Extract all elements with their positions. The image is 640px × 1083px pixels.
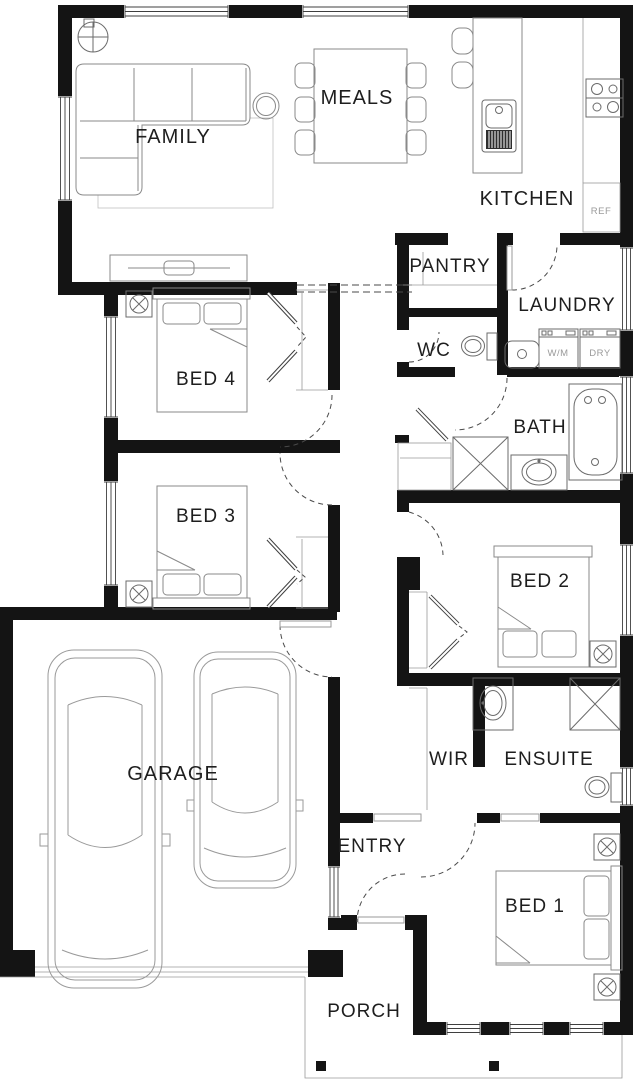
room-label-bed4: BED 4 — [176, 369, 236, 390]
ceiling-fan-bed3 — [126, 581, 152, 607]
window-bath-right — [619, 376, 634, 474]
laundry-tub — [505, 341, 539, 368]
family-furniture — [76, 19, 279, 281]
pillow — [503, 631, 537, 657]
bed1-door-leaf — [374, 814, 421, 821]
bed2-furniture — [409, 546, 616, 668]
stool — [452, 28, 473, 54]
garage-door-leaf — [280, 621, 331, 627]
chair — [406, 97, 426, 122]
window-meals-top — [302, 4, 409, 19]
washer-label: W/M — [547, 348, 568, 359]
bed2-headboard — [494, 546, 592, 557]
stool — [452, 62, 473, 88]
garage-door — [35, 967, 308, 972]
room-label-porch: PORCH — [327, 1001, 401, 1022]
floor-plan-svg: FAMILY MEALS KITCHEN PANTRY LAUNDRY WC B… — [0, 0, 640, 1083]
bed3-fold — [157, 551, 195, 570]
wir-ensuite-fixtures — [409, 678, 622, 810]
bath-fixtures — [398, 384, 622, 490]
laundry-door-swing — [512, 245, 557, 290]
room-label-entry: ENTRY — [337, 836, 406, 857]
kitchen-sink — [482, 100, 516, 152]
room-label-ensuite: ENSUITE — [504, 749, 593, 770]
window-bed3-left — [103, 481, 119, 586]
room-label-family: FAMILY — [135, 126, 211, 148]
room-label-kitchen: KITCHEN — [480, 188, 575, 210]
room-label-bed3: BED 3 — [176, 506, 236, 527]
bath-vanity — [511, 455, 567, 490]
bathtub — [569, 384, 622, 480]
bed1-mattress — [496, 871, 611, 965]
porch-post — [316, 1061, 326, 1071]
dryer-label: DRY — [589, 348, 611, 359]
front-door-swing — [357, 874, 405, 922]
window-family-left — [57, 96, 73, 201]
ensuite-toilet — [585, 773, 622, 802]
bed1-furniture — [496, 834, 622, 1000]
ceiling-fan-bed1-a — [594, 834, 620, 860]
room-label-garage: GARAGE — [127, 763, 219, 785]
linen-cupboard — [398, 409, 451, 490]
bed4-door-swing — [280, 395, 332, 447]
bath-shower — [453, 437, 508, 490]
window-laundry-right — [619, 247, 634, 331]
fridge-label: REF — [591, 206, 612, 217]
bed4-fold — [210, 329, 247, 347]
island-bench — [473, 18, 522, 173]
pillow — [584, 919, 609, 959]
car-large — [40, 650, 170, 988]
cooktop — [586, 79, 623, 117]
pillow — [163, 303, 200, 324]
room-labels: FAMILY MEALS KITCHEN PANTRY LAUNDRY WC B… — [127, 87, 616, 1022]
window-bed2-right — [619, 544, 634, 636]
floor-plan-page: FAMILY MEALS KITCHEN PANTRY LAUNDRY WC B… — [0, 0, 640, 1083]
chair — [406, 63, 426, 88]
bed3-door-swing — [280, 453, 332, 505]
room-label-laundry: LAUNDRY — [518, 295, 615, 316]
windows — [57, 4, 634, 1036]
window-bed4-left — [103, 316, 119, 418]
porch-post — [489, 1061, 499, 1071]
window-bed1-bottom-3 — [569, 1021, 604, 1036]
garage-cars — [0, 650, 308, 988]
window-entry-side — [327, 866, 341, 918]
interior-walls — [104, 233, 633, 823]
bed3-mattress — [157, 486, 247, 598]
pillow — [163, 574, 200, 595]
pillow — [542, 631, 576, 657]
bed2-door-swing — [409, 512, 443, 555]
room-label-meals: MEALS — [321, 87, 394, 109]
bed3-wardrobe — [268, 537, 328, 608]
bed4-furniture — [126, 288, 328, 412]
bed3-furniture — [126, 486, 328, 609]
bed4-mattress — [157, 299, 247, 412]
bed1-fold — [496, 936, 530, 963]
bed1-door-swing — [421, 823, 475, 877]
bed4-wardrobe — [268, 290, 328, 390]
ensuite-opening — [501, 814, 539, 821]
pillow — [204, 303, 241, 324]
room-label-bed1: BED 1 — [505, 896, 565, 917]
chair — [295, 63, 315, 88]
hall-opening-bulkhead — [297, 285, 412, 292]
room-label-bed2: BED 2 — [510, 571, 570, 592]
wir-shelves — [409, 688, 427, 810]
front-door-leaf — [358, 917, 404, 923]
laundry-door-leaf — [507, 246, 512, 290]
room-label-wc: WC — [417, 340, 451, 361]
chair — [295, 97, 315, 122]
bed2-wardrobe — [409, 592, 467, 668]
bed2-fold — [498, 607, 531, 629]
room-label-bath: BATH — [513, 417, 566, 438]
window-bed1-bottom-1 — [446, 1021, 481, 1036]
window-family-top — [124, 4, 229, 19]
bath-door-swing — [455, 378, 507, 430]
ceiling-fan-family — [78, 19, 108, 52]
chair — [406, 130, 426, 155]
ceiling-fan-bed2 — [590, 641, 616, 667]
pillow — [584, 876, 609, 916]
chair — [295, 130, 315, 155]
ceiling-fan-bed1-b — [594, 974, 620, 1000]
window-bed1-bottom-2 — [509, 1021, 544, 1036]
room-label-pantry: PANTRY — [409, 256, 490, 277]
room-label-wir: WIR — [429, 749, 469, 770]
pillow — [204, 574, 241, 595]
wc-toilet — [462, 333, 498, 360]
